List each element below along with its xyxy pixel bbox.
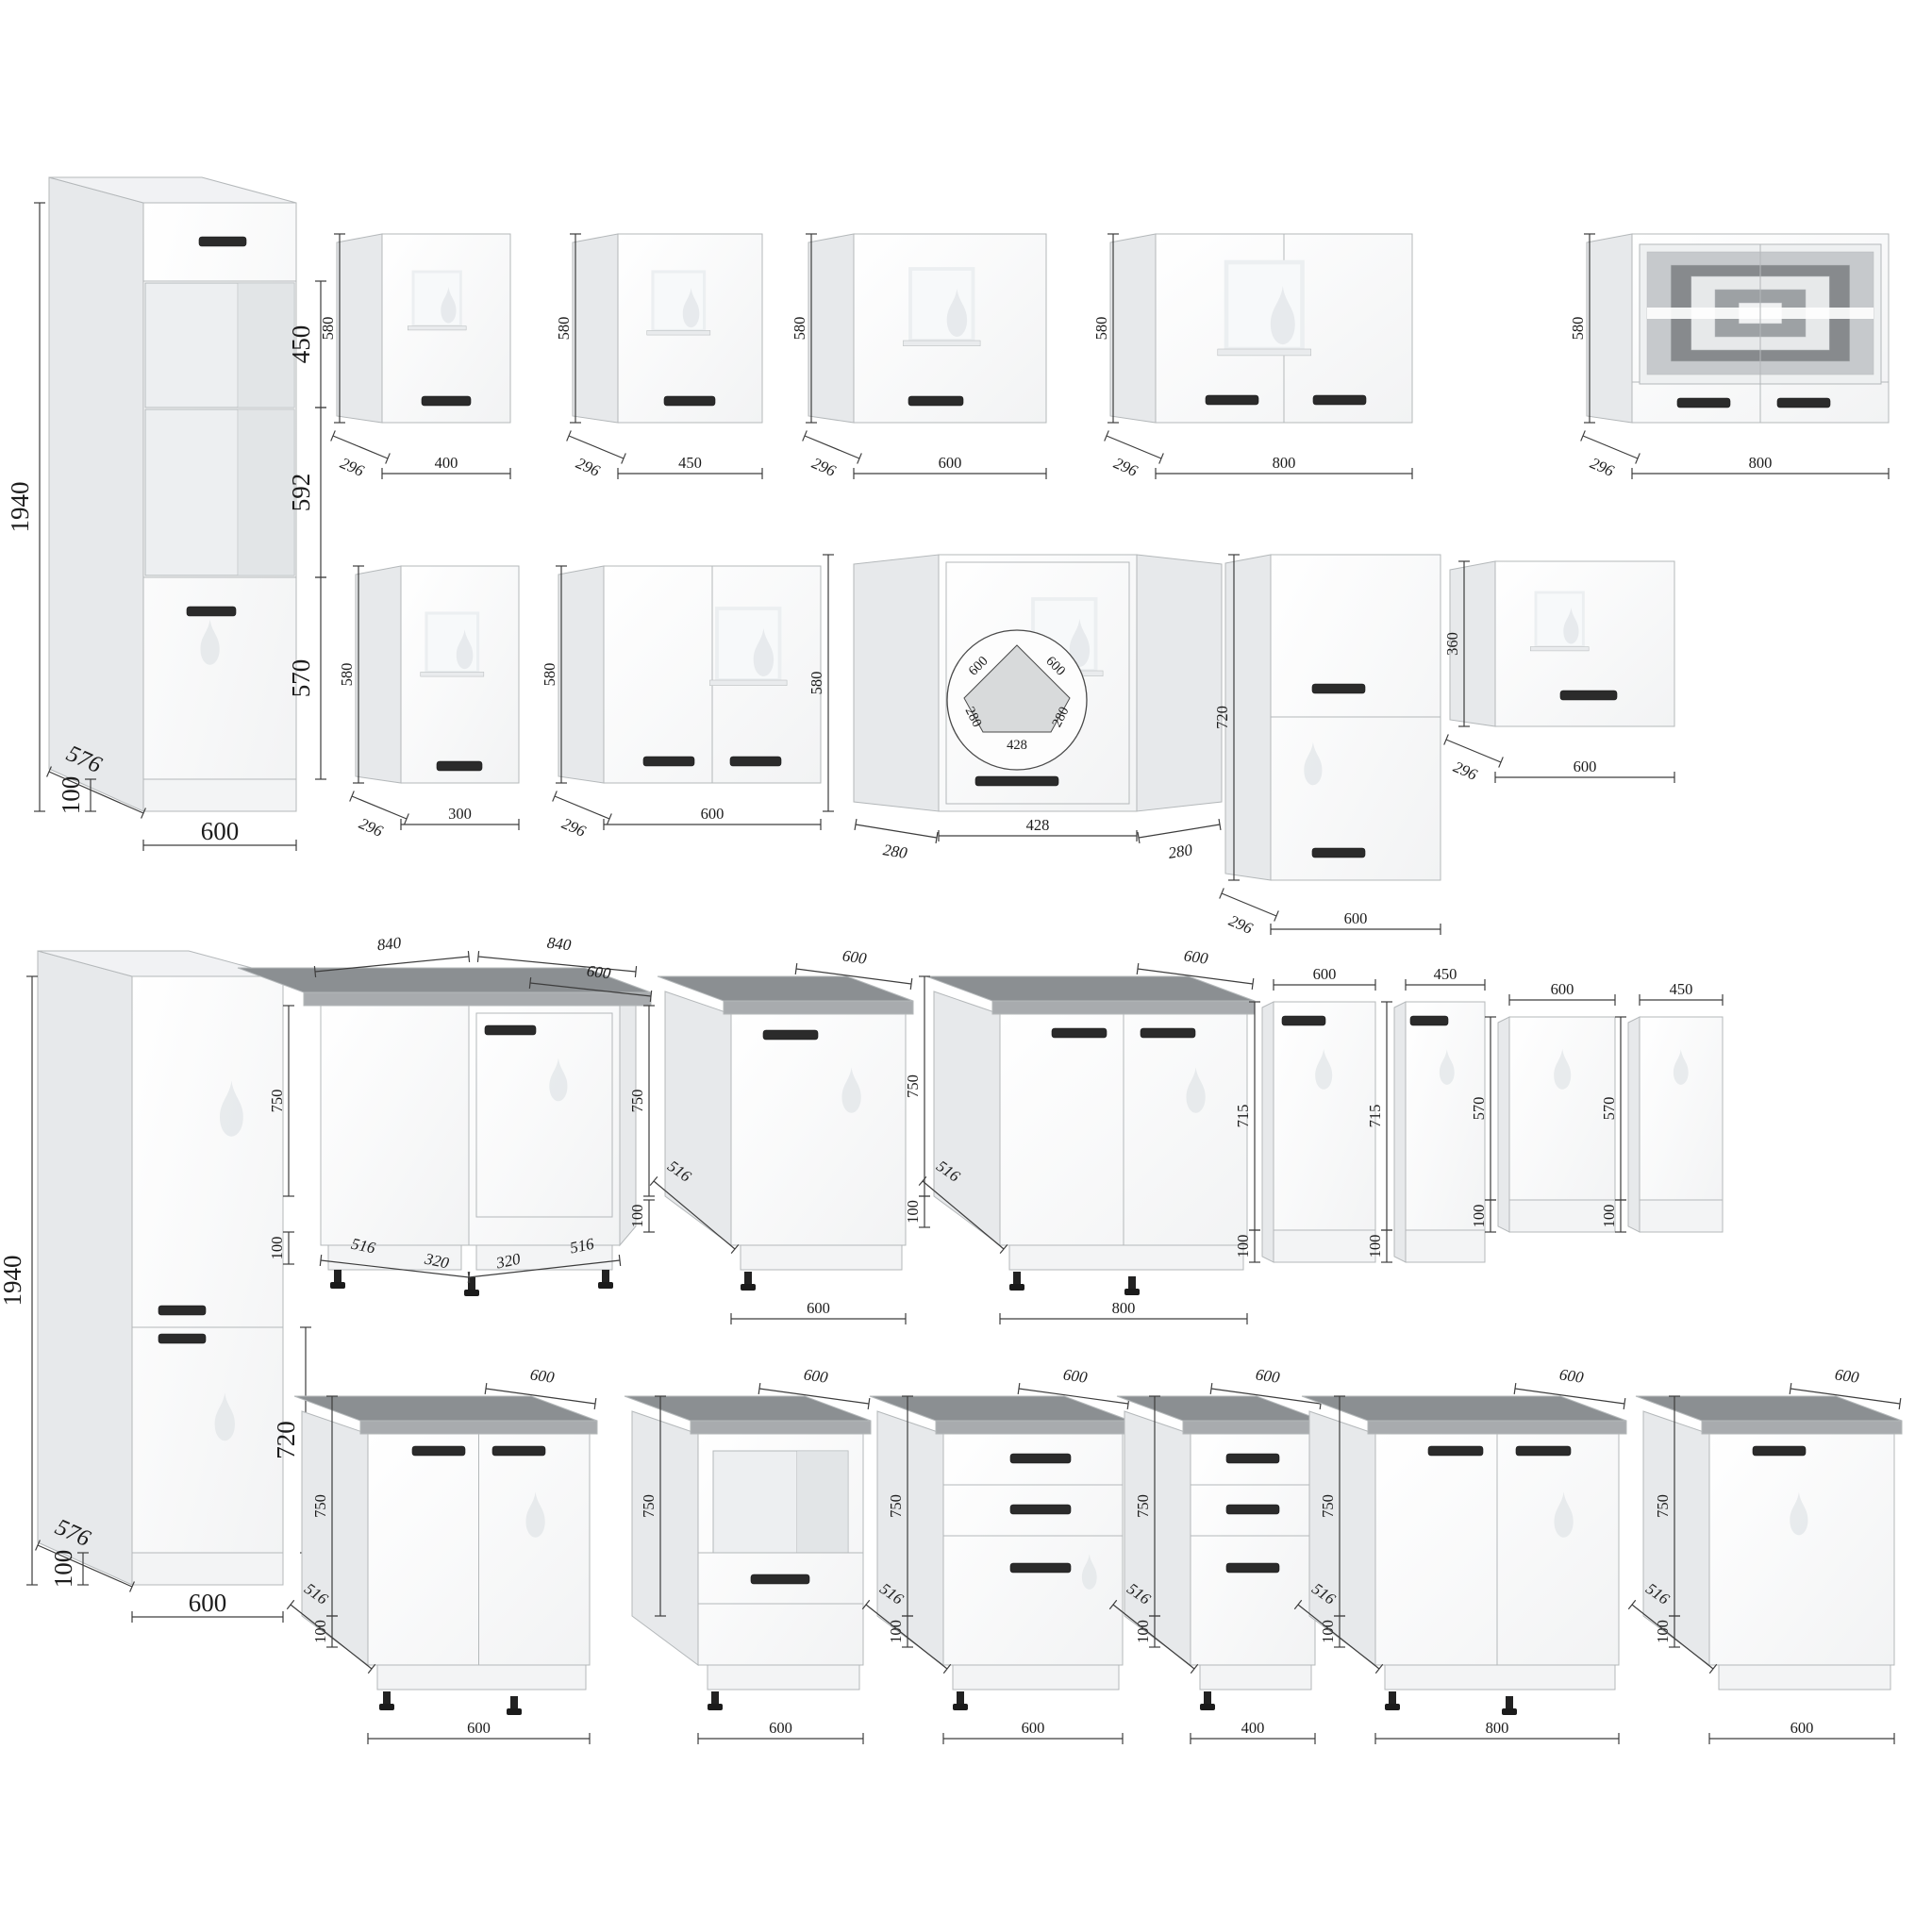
door-handle <box>485 1025 536 1035</box>
wall-cabinet-600-360-flap: 360296600 <box>1443 561 1674 784</box>
dimension-label: 600 <box>1834 1365 1860 1386</box>
cabinet-plinth <box>741 1245 902 1270</box>
dimension-label: 100 <box>49 1550 77 1589</box>
dimension-tick <box>1709 1664 1716 1673</box>
dimension-label: 580 <box>338 663 356 687</box>
wall-cabinet-600-720-2-flap: 720296600 <box>1213 555 1441 938</box>
door-handle <box>158 1334 206 1343</box>
dimension-label: 600 <box>1344 909 1368 927</box>
base-drawer-cabinet-600: 750100516600600 <box>862 1365 1130 1744</box>
countertop-edge <box>1702 1421 1902 1434</box>
dimension-label: 296 <box>1451 758 1480 784</box>
dimension-label: 592 <box>287 474 315 512</box>
dimension-label: 750 <box>1654 1494 1672 1518</box>
dimension-label: 580 <box>1092 317 1110 341</box>
door-handle <box>1312 848 1365 858</box>
countertop-surface <box>294 1396 597 1421</box>
dimension-line <box>555 796 609 819</box>
dimension-label: 296 <box>1226 911 1256 938</box>
cabinet-plinth <box>377 1665 586 1690</box>
cabinet-side <box>1137 555 1222 811</box>
adjustable-leg-foot <box>708 1704 723 1710</box>
dimension-label: 428 <box>1026 816 1050 834</box>
dimension-tick <box>1018 1383 1020 1394</box>
dimension-label: 600 <box>1790 1719 1814 1737</box>
adjustable-leg-foot <box>379 1704 394 1710</box>
wall-cabinet-800-2-door: 580296800 <box>1092 234 1412 480</box>
adjustable-leg-foot <box>953 1704 968 1710</box>
door-handle <box>763 1030 818 1040</box>
dimension-label: 720 <box>272 1421 300 1459</box>
dimension-label: 600 <box>586 962 612 983</box>
dimension-label: 600 <box>1255 1365 1281 1386</box>
dimension-line <box>856 824 937 838</box>
dimension-line <box>333 436 388 458</box>
cabinet-side <box>632 1411 698 1665</box>
dimension-tick <box>553 791 558 801</box>
adjustable-leg-foot <box>1502 1708 1517 1715</box>
dimension-tick <box>619 1255 620 1266</box>
cabinet-plinth <box>1719 1665 1890 1690</box>
dimension-label: 580 <box>791 317 808 341</box>
dimension-label: 800 <box>1112 1299 1136 1317</box>
dimension-tick <box>1624 1398 1625 1409</box>
dimension-label: 600 <box>701 805 724 823</box>
wall-cabinet-600-2-door: 580296600 <box>541 566 821 841</box>
dimension-label: 600 <box>807 1299 830 1317</box>
panel-edge <box>1262 1002 1274 1262</box>
dimension-label: 600 <box>939 454 962 472</box>
dimension-label: 600 <box>1551 980 1574 998</box>
dimension-line <box>1222 893 1276 916</box>
window-sill-reflection <box>709 680 787 686</box>
dimension-label: 1940 <box>6 482 34 533</box>
dimension-line <box>1107 436 1161 458</box>
panel-plinth <box>1406 1230 1485 1262</box>
wall-cabinet-400: 580296400 <box>319 234 510 480</box>
dimension-label: 800 <box>1273 454 1296 472</box>
cabinet-front <box>469 1006 620 1245</box>
dimension-label: 570 <box>1600 1097 1618 1121</box>
cabinet-side <box>558 566 604 783</box>
dimension-tick <box>758 1383 760 1394</box>
countertop-edge <box>1368 1421 1626 1434</box>
dimension-label: 580 <box>319 317 337 341</box>
dimension-tick <box>650 1176 658 1185</box>
cabinet-front <box>731 1014 906 1245</box>
plan-dimension-label: 428 <box>1007 738 1027 753</box>
tall-cabinet-600-2-door: 1940720100576600 <box>0 951 311 1623</box>
base-cabinet-600-1-door-b: 750100516600600 <box>1628 1365 1902 1744</box>
dimension-label: 1940 <box>0 1256 26 1307</box>
door-handle <box>1312 684 1365 693</box>
side-panel-600-570: 600570100 <box>1470 980 1615 1232</box>
dimension-tick <box>622 453 626 463</box>
dimension-label: 450 <box>678 454 702 472</box>
dimension-tick <box>1499 757 1504 767</box>
cabinet-plinth <box>1009 1245 1243 1270</box>
door-handle <box>1141 1028 1195 1038</box>
door-handle <box>422 396 471 406</box>
countertop-edge <box>691 1421 871 1434</box>
dimension-tick <box>731 1244 739 1253</box>
adjustable-leg <box>1204 1691 1211 1706</box>
panel-plinth <box>1640 1200 1723 1232</box>
dimension-tick <box>858 453 862 463</box>
cabinet-side <box>356 566 401 783</box>
cabinet-counterFront <box>304 992 651 1006</box>
dimension-tick <box>1191 1664 1197 1673</box>
adjustable-leg-foot <box>1200 1704 1215 1710</box>
countertop-surface <box>1636 1396 1902 1421</box>
base-cabinet-800-2-door-a: 750100516800600 <box>904 946 1255 1324</box>
dimension-line <box>1583 436 1638 458</box>
cabinet-plinth <box>953 1665 1119 1690</box>
dimension-tick <box>485 1383 487 1394</box>
adjustable-leg <box>1389 1691 1396 1706</box>
dimension-tick <box>405 813 409 824</box>
open-compartment-shade <box>238 283 294 408</box>
adjustable-leg <box>744 1272 752 1286</box>
door-handle <box>1010 1454 1071 1463</box>
base-drawer-cabinet-400: 750100516400600 <box>1109 1365 1323 1744</box>
dimension-label: 570 <box>287 659 315 698</box>
door-handle <box>1226 1563 1279 1573</box>
wall-cabinet-300: 580296300 <box>338 566 519 841</box>
countertop-surface <box>870 1396 1130 1421</box>
door-handle <box>643 757 694 766</box>
cabinet-front <box>943 1434 1123 1665</box>
dimension-label: 750 <box>1134 1494 1152 1518</box>
dimension-label: 450 <box>287 325 315 364</box>
dimension-label: 800 <box>1749 454 1773 472</box>
dimension-label: 720 <box>1213 706 1231 729</box>
dimension-label: 580 <box>1569 317 1587 341</box>
door-handle <box>1560 691 1617 700</box>
cabinet-side <box>808 234 854 423</box>
dimension-tick <box>1444 734 1449 744</box>
dimension-tick <box>1581 430 1586 441</box>
dimension-tick <box>1159 453 1164 463</box>
window-sill-reflection <box>903 341 980 346</box>
cabinet-side <box>665 991 731 1245</box>
countertop-edge <box>936 1421 1130 1434</box>
dimension-label: 280 <box>1167 841 1194 862</box>
dimension-label: 296 <box>338 454 367 480</box>
dimension-tick <box>287 1600 293 1608</box>
dimension-tick <box>350 791 355 801</box>
dimension-label: 715 <box>1234 1105 1252 1128</box>
dimension-tick <box>635 966 636 977</box>
cabinet-plinth <box>132 1553 283 1585</box>
cabinet-plinth <box>143 779 296 811</box>
door-handle <box>730 757 781 766</box>
dimension-tick <box>1137 963 1139 974</box>
dimension-label: 450 <box>1670 980 1693 998</box>
door-handle <box>412 1446 465 1456</box>
dimension-tick <box>331 430 336 441</box>
panel-front <box>1274 1002 1375 1262</box>
dimension-label: 600 <box>1183 946 1209 967</box>
adjustable-leg-foot <box>1009 1284 1024 1291</box>
door-handle <box>664 396 715 406</box>
dimension-label: 580 <box>555 317 573 341</box>
cabinet-side <box>1587 234 1632 423</box>
countertop-edge <box>724 1001 913 1014</box>
panel-edge <box>1498 1017 1509 1232</box>
door-handle <box>751 1574 809 1584</box>
dimension-tick <box>910 978 912 990</box>
adjustable-leg-foot <box>1385 1704 1400 1710</box>
catalog-page: 1940450592570100576600580296400580296450… <box>0 0 1932 1932</box>
cabinet-front <box>132 976 283 1585</box>
door-handle <box>1777 398 1830 408</box>
dimension-tick <box>1210 1383 1212 1394</box>
base-oven-housing-600: 750600600 <box>625 1365 871 1744</box>
dimension-label: 840 <box>376 934 403 955</box>
door-handle <box>199 237 246 246</box>
window-sill-reflection <box>1218 349 1311 356</box>
dimension-label: 296 <box>559 814 589 841</box>
adjustable-leg <box>1128 1276 1136 1291</box>
door-handle <box>1282 1016 1325 1025</box>
dimension-tick <box>1628 1600 1635 1608</box>
dimension-label: 600 <box>189 1589 227 1617</box>
dimension-tick <box>594 1398 596 1409</box>
door-handle <box>1226 1454 1279 1463</box>
window-sill-reflection <box>421 672 484 676</box>
dimension-label: 570 <box>1470 1097 1488 1121</box>
door-handle <box>1753 1446 1806 1456</box>
countertop-edge <box>1183 1421 1323 1434</box>
dimension-line <box>1139 824 1220 838</box>
dimension-label: 750 <box>1319 1494 1337 1518</box>
dimension-line <box>352 796 407 819</box>
dimension-tick <box>1899 1398 1901 1409</box>
dimension-tick <box>795 963 797 974</box>
panel-edge <box>1628 1017 1640 1232</box>
countertop-surface <box>1302 1396 1626 1421</box>
dimension-label: 750 <box>311 1494 329 1518</box>
dimension-tick <box>368 1664 375 1673</box>
dimension-label: 450 <box>1434 965 1457 983</box>
dimension-label: 300 <box>448 805 472 823</box>
door-handle <box>908 396 963 406</box>
countertop-edge <box>360 1421 597 1434</box>
adjustable-leg-foot <box>598 1282 613 1289</box>
adjustable-leg <box>334 1270 341 1284</box>
panel-plinth <box>1274 1230 1375 1262</box>
dimension-tick <box>1000 1244 1008 1253</box>
dimension-tick <box>1636 453 1641 463</box>
adjustable-leg <box>510 1696 518 1710</box>
dimension-label: 400 <box>435 454 458 472</box>
dimension-label: 580 <box>808 672 825 695</box>
cabinet-side <box>1225 555 1271 880</box>
dishwasher-panel-600-715: 600715100 <box>1234 965 1375 1262</box>
dishwasher-panel-450-715: 450715100 <box>1366 965 1485 1262</box>
dimension-label: 600 <box>1574 758 1597 775</box>
door-handle <box>1052 1028 1107 1038</box>
dimension-label: 400 <box>1241 1719 1265 1737</box>
dimension-tick <box>477 951 478 962</box>
dimension-label: 100 <box>1470 1205 1488 1228</box>
dimension-label: 750 <box>887 1494 905 1518</box>
adjustable-leg <box>383 1691 391 1706</box>
dimension-label: 100 <box>628 1205 646 1228</box>
cabinet-plinth <box>1385 1665 1615 1690</box>
countertop-edge <box>992 1001 1255 1014</box>
dimension-tick <box>919 1176 926 1185</box>
dimension-label: 580 <box>541 663 558 687</box>
panel-edge <box>1394 1002 1406 1262</box>
cabinet-side <box>934 991 1000 1245</box>
door-handle <box>1313 395 1366 405</box>
cabinet-front <box>321 1006 469 1245</box>
cabinet-drawing-area: 1940450592570100576600580296400580296450… <box>0 0 1932 1932</box>
adjustable-leg-foot <box>507 1708 522 1715</box>
base-cabinet-600-2-door: 750100516600600 <box>287 1365 597 1744</box>
door-handle <box>437 761 482 771</box>
window-sill-reflection <box>408 326 466 330</box>
cabinet-side <box>1110 234 1156 423</box>
dimension-tick <box>1274 910 1279 921</box>
dimension-label: 750 <box>904 1074 922 1098</box>
dimension-label: 280 <box>882 841 909 862</box>
dimension-line <box>1446 740 1501 762</box>
dimension-tick <box>1252 978 1254 990</box>
dimension-label: 600 <box>529 1365 556 1386</box>
wall-cabinet-600: 580296600 <box>791 234 1046 480</box>
adjustable-leg-foot <box>741 1284 756 1291</box>
cabinet-side <box>38 951 132 1585</box>
dimension-label: 800 <box>1486 1719 1509 1737</box>
door-handle <box>187 607 236 616</box>
cabinet-front <box>1709 1434 1894 1665</box>
dimension-tick <box>468 951 469 962</box>
base-cabinet-600-1-door-a: 516600600 <box>650 946 913 1324</box>
corner-base-cabinet-840x840: 750100750100840840600516320320516 <box>238 934 655 1296</box>
corner-wall-cabinet-600x600: 600600280280428580280428280 <box>808 555 1222 862</box>
dimension-label: 296 <box>1111 454 1141 480</box>
side-panel-450-570: 450570100 <box>1600 980 1723 1232</box>
dimension-tick <box>567 430 572 441</box>
adjustable-leg <box>1506 1696 1513 1710</box>
dimension-label: 600 <box>769 1719 792 1737</box>
cabinet-plinth <box>708 1665 859 1690</box>
dimension-label: 600 <box>841 946 868 967</box>
dimension-label: 600 <box>201 817 240 845</box>
door-handle <box>1010 1505 1071 1514</box>
open-compartment-shade <box>797 1451 848 1553</box>
dimension-tick <box>803 430 808 441</box>
dimension-label: 296 <box>357 814 386 841</box>
wall-cabinet-800-glass: 580296800 <box>1569 234 1889 480</box>
cabinet-side <box>337 234 382 423</box>
cabinet-side <box>854 555 939 811</box>
door-handle <box>1206 395 1258 405</box>
base-cabinet-800-2-door: 750100516800600 <box>1294 1365 1626 1744</box>
open-compartment-shade <box>238 409 294 575</box>
catalog-svg: 1940450592570100576600580296400580296450… <box>0 0 1932 1932</box>
cabinet-side <box>573 234 618 423</box>
dimension-tick <box>386 453 391 463</box>
adjustable-leg-foot <box>464 1290 479 1296</box>
window-sill-reflection <box>1530 647 1589 651</box>
dimension-tick <box>1375 1664 1382 1673</box>
dimension-label: 600 <box>1558 1365 1585 1386</box>
dimension-label: 296 <box>809 454 839 480</box>
dimension-label: 100 <box>1600 1205 1618 1228</box>
door-handle <box>492 1446 545 1456</box>
door-handle <box>975 776 1058 786</box>
countertop-surface <box>625 1396 871 1421</box>
dimension-label: 360 <box>1443 632 1461 656</box>
dimension-label: 100 <box>1366 1235 1384 1258</box>
cabinet-front <box>1191 1434 1315 1665</box>
door-handle <box>1428 1446 1483 1456</box>
dimension-label: 750 <box>628 1090 646 1113</box>
door-handle <box>1677 398 1730 408</box>
dimension-label: 600 <box>1062 1365 1089 1386</box>
dimension-tick <box>1514 1383 1516 1394</box>
adjustable-leg <box>1013 1272 1021 1286</box>
dimension-label: 296 <box>1588 454 1617 480</box>
tall-oven-housing-600: 1940450592570100576600 <box>6 177 326 851</box>
dimension-tick <box>868 1398 870 1409</box>
dimension-label: 600 <box>1313 965 1337 983</box>
adjustable-leg <box>711 1691 719 1706</box>
dimension-label: 100 <box>57 776 85 815</box>
dimension-label: 840 <box>546 934 573 955</box>
door-handle <box>1010 1563 1071 1573</box>
adjustable-leg-foot <box>1124 1289 1140 1295</box>
adjustable-leg <box>602 1270 609 1284</box>
countertop-surface <box>658 976 913 1001</box>
dimension-label: 100 <box>268 1237 286 1260</box>
cabinet-front <box>1495 561 1674 726</box>
dimension-line <box>805 436 859 458</box>
dimension-tick <box>320 1255 321 1266</box>
cabinet-plinth <box>1200 1665 1311 1690</box>
dimension-label: 600 <box>803 1365 829 1386</box>
dimension-label: 100 <box>1234 1235 1252 1258</box>
dimension-label: 715 <box>1366 1105 1384 1128</box>
dimension-tick <box>1220 888 1224 898</box>
door-handle <box>158 1306 206 1315</box>
dimension-label: 296 <box>574 454 603 480</box>
door-handle <box>1410 1016 1448 1025</box>
door-handle <box>1226 1505 1279 1514</box>
window-sill-reflection <box>647 330 710 335</box>
adjustable-leg <box>957 1691 964 1706</box>
dimension-line <box>569 436 624 458</box>
dimension-tick <box>943 1664 950 1673</box>
adjustable-leg-foot <box>330 1282 345 1289</box>
dimension-tick <box>1105 430 1109 441</box>
countertop-surface <box>926 976 1255 1001</box>
dimension-label: 600 <box>1022 1719 1045 1737</box>
wall-cabinet-450: 580296450 <box>555 234 762 480</box>
dimension-label: 100 <box>904 1200 922 1224</box>
dimension-tick <box>1790 1383 1791 1394</box>
cabinet-side <box>49 177 143 811</box>
dimension-label: 750 <box>268 1090 286 1113</box>
dimension-tick <box>608 813 612 824</box>
dimension-label: 750 <box>640 1494 658 1518</box>
door-handle <box>1516 1446 1571 1456</box>
dimension-label: 600 <box>467 1719 491 1737</box>
